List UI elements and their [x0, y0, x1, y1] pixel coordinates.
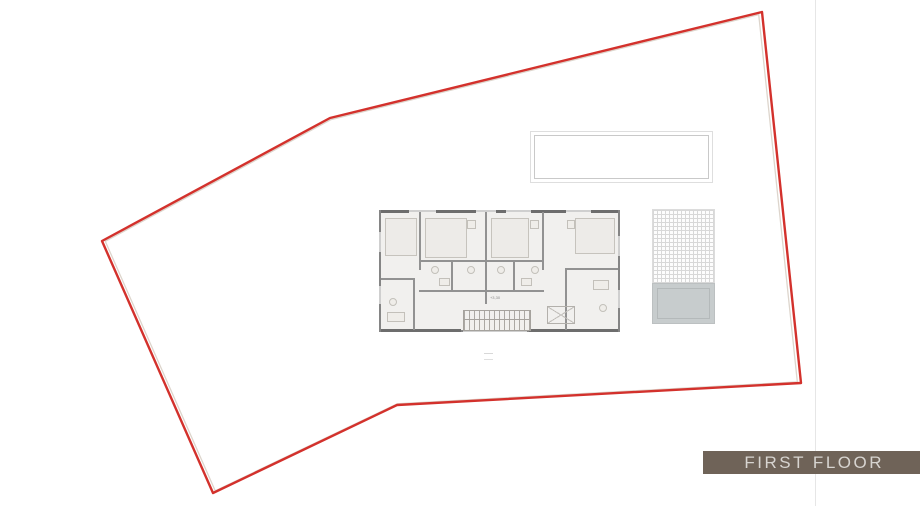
toilet — [467, 266, 475, 274]
elevation-label: +3,30 — [480, 295, 510, 300]
floor-title-banner: FIRST FLOOR — [703, 451, 920, 474]
toilet — [389, 298, 397, 306]
interior-wall — [413, 278, 415, 330]
staircase — [463, 310, 531, 331]
window — [379, 286, 381, 304]
sink — [521, 278, 532, 286]
wall-segment — [496, 210, 506, 213]
bed — [385, 218, 417, 256]
nightstand — [567, 220, 575, 229]
window — [618, 290, 620, 308]
window — [506, 210, 531, 212]
print-artifact — [484, 353, 493, 360]
floorplan: +3,30 — [379, 210, 620, 332]
wall-segment — [436, 210, 476, 213]
toilet — [531, 266, 539, 274]
interior-wall — [419, 260, 544, 262]
bed — [425, 218, 467, 258]
interior-wall — [513, 260, 515, 292]
bed — [491, 218, 529, 258]
bed — [575, 218, 615, 254]
wall-segment — [591, 210, 618, 213]
interior-wall — [419, 290, 544, 292]
bathtub — [387, 312, 405, 322]
interior-wall — [565, 268, 618, 270]
pergola-grid — [652, 209, 715, 284]
nightstand — [530, 220, 539, 229]
pool-inner-edge — [534, 135, 709, 179]
wall-segment — [529, 329, 618, 332]
pool-outline — [530, 131, 713, 183]
roof-block-edge — [657, 288, 710, 319]
toilet — [497, 266, 505, 274]
toilet — [599, 304, 607, 312]
window — [618, 236, 620, 256]
architectural-sheet: { "banner": { "label": "FIRST FLOOR", "b… — [0, 0, 920, 506]
staircase-rail — [463, 319, 529, 320]
wall-segment — [381, 329, 461, 332]
sink — [593, 280, 609, 290]
nightstand — [467, 220, 476, 229]
shaft-cross — [547, 306, 575, 324]
window — [409, 210, 436, 212]
window — [379, 232, 381, 252]
wall-segment — [531, 210, 566, 213]
roof-block — [652, 283, 715, 324]
floor-title-label: FIRST FLOOR — [744, 453, 884, 473]
wall-segment — [381, 210, 409, 213]
interior-wall — [381, 278, 413, 280]
toilet — [431, 266, 439, 274]
sink — [439, 278, 450, 286]
window — [566, 210, 591, 212]
interior-wall — [451, 260, 453, 292]
